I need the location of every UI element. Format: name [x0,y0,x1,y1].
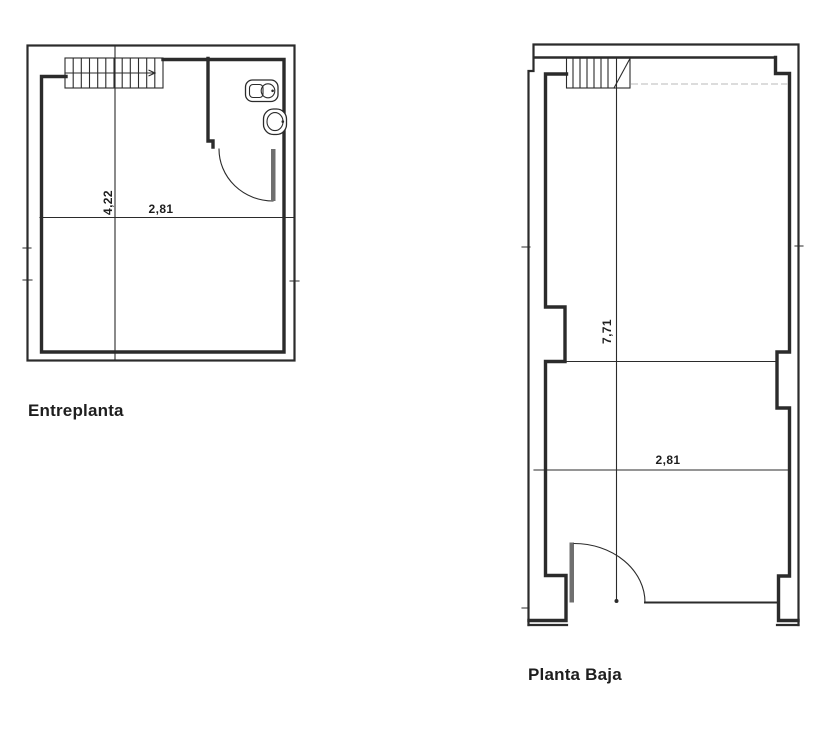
entreplanta-plan-title: Entreplanta [28,401,124,420]
floor-plan-sheet: 4,22 2,81 Entreplanta [0,0,820,733]
planta-baja-outer-wall [529,45,799,626]
stair-enclosure [567,58,631,88]
toilet-icon [246,80,279,102]
alignment-ticks [23,248,299,281]
entrance-door-leaf-icon [570,543,575,603]
planta-baja-right-inner-wall [776,58,799,621]
planta-baja-floor-plan: 7,71 2,81 Planta Baja [522,45,803,685]
bathroom-partition-wall [208,59,213,148]
planta-baja-plan-title: Planta Baja [528,665,622,684]
planta-baja-vertical-dimension-value: 7,71 [600,319,614,344]
toilet-flush-dot [271,90,274,93]
stair-treads [573,58,608,88]
dimension-end-dot [615,599,619,603]
door-swing-arc-icon [219,149,273,201]
staircase-icon [65,58,163,88]
door-leaf-icon [271,149,276,201]
entreplanta-floor-plan: 4,22 2,81 Entreplanta [23,46,299,421]
alignment-ticks [522,246,803,608]
planta-baja-horizontal-dimension-value: 2,81 [656,453,681,467]
entreplanta-vertical-dimension-value: 4,22 [101,190,115,215]
washbasin-faucet-dot [282,120,285,123]
planta-baja-left-inner-wall [529,74,567,621]
entrance-door-swing-arc-icon [574,544,645,603]
entreplanta-horizontal-dimension-value: 2,81 [149,202,174,216]
floor-plan-drawing: 4,22 2,81 Entreplanta [0,0,820,733]
washbasin-icon [264,109,287,135]
staircase-icon [567,58,631,88]
